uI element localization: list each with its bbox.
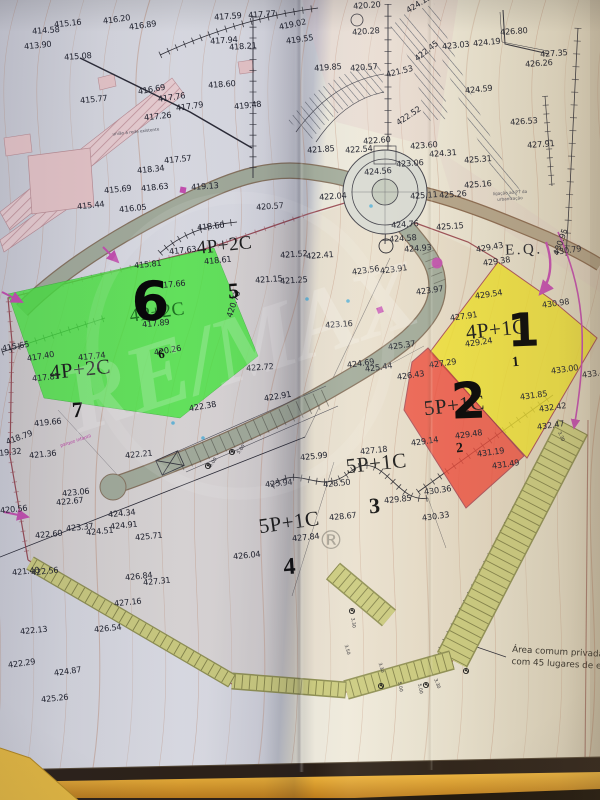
elevation-label: 417.79 (175, 99, 204, 113)
elevation-label: 425.26 (439, 188, 467, 200)
elevation-label: 426.54 (94, 622, 122, 635)
elevation-label: 422.41 (306, 249, 334, 261)
elevation-label: 417.57 (164, 153, 192, 166)
elevation-label: 418.34 (137, 163, 165, 176)
elevation-label: 423.06 (396, 157, 424, 169)
elevation-label: 425.16 (464, 178, 492, 190)
elevation-label: 421.85 (307, 143, 335, 155)
elevation-label: 423.03 (442, 39, 470, 52)
elevation-label: 427.91 (527, 138, 555, 150)
elevation-label: 416.20 (102, 12, 131, 26)
tiny-pt-note-2: urbanização (497, 195, 523, 202)
elevation-label: 415.69 (104, 183, 132, 196)
elevation-label: 413.90 (24, 39, 52, 52)
elevation-label: 419.02 (278, 16, 307, 31)
elevation-label: 424.31 (429, 147, 457, 159)
wheelchair-icon (463, 668, 468, 673)
elevation-label: 426.26 (525, 57, 553, 69)
map-note-line2: com 45 lugares de estaci (511, 657, 600, 673)
lot-1-big-number: 1 (507, 302, 541, 357)
elevation-label: 422.54 (345, 143, 373, 155)
photo-of-site-plan: 415.16416.20416.89414.58413.90415.08417.… (0, 0, 600, 800)
elevation-label: 424.56 (364, 165, 392, 177)
wheelchair-icon (423, 682, 428, 687)
elevation-label: 422.13 (20, 624, 48, 637)
elevation-label: 419.13 (191, 180, 219, 192)
elevation-label: 419.55 (285, 32, 314, 46)
elevation-label: 415.44 (77, 199, 105, 212)
map-note: Área comum privada dos com 45 lugares de… (511, 643, 600, 673)
elevation-label: 418.63 (141, 181, 169, 194)
elevation-label: 421.52 (280, 248, 308, 260)
elevation-label: 414.58 (32, 24, 60, 36)
dimension-label: 5.00 (416, 683, 424, 694)
elevation-label: 425.31 (464, 153, 492, 165)
elevation-label: 417.59 (214, 10, 242, 22)
elevation-label: 418.60 (197, 220, 225, 233)
elevation-label: 424.93 (404, 242, 432, 254)
elevation-label: 418.60 (208, 78, 236, 90)
site-plan-map: 415.16416.20416.89414.58413.90415.08417.… (0, 0, 600, 800)
elevation-label: 422.29 (7, 656, 36, 670)
elevation-label: 424.87 (53, 664, 82, 678)
elevation-label: 418.21 (229, 40, 257, 52)
elevation-label: 424.59 (465, 83, 493, 96)
elevation-label: 420.57 (350, 61, 378, 73)
elevation-label: 424.76 (391, 218, 419, 230)
elevation-label: 417.26 (144, 110, 172, 123)
lot-4-number: 4 (283, 554, 297, 581)
lot-3-number: 3 (368, 493, 381, 519)
elevation-label: 426.53 (510, 115, 538, 127)
elevation-label: 415.08 (64, 50, 92, 62)
elevation-label: 415.77 (80, 93, 108, 106)
elevation-label: 419.85 (314, 61, 342, 73)
dimension-label: 3.30 (432, 678, 441, 690)
elevation-label: 429.43 (475, 240, 504, 255)
lot-2-big-number: 2 (450, 371, 487, 430)
elevation-label: 426.80 (500, 25, 528, 37)
elevation-label: 424.19 (473, 36, 501, 49)
elevation-label: 425.11 (410, 189, 438, 201)
elevation-label: 425.26 (41, 692, 69, 705)
equipment-zone-label: E.Q. (505, 241, 543, 258)
elevation-label: 416.89 (128, 18, 157, 32)
elevation-label: 425.15 (436, 220, 464, 232)
elevation-label: 420.28 (352, 25, 380, 37)
elevation-label: 419.48 (234, 99, 262, 112)
elevation-label: 420.20 (353, 0, 381, 11)
elevation-label: 417.77 (248, 8, 276, 20)
elevation-label: 422.04 (319, 190, 347, 202)
registered-mark: ® (318, 526, 344, 556)
